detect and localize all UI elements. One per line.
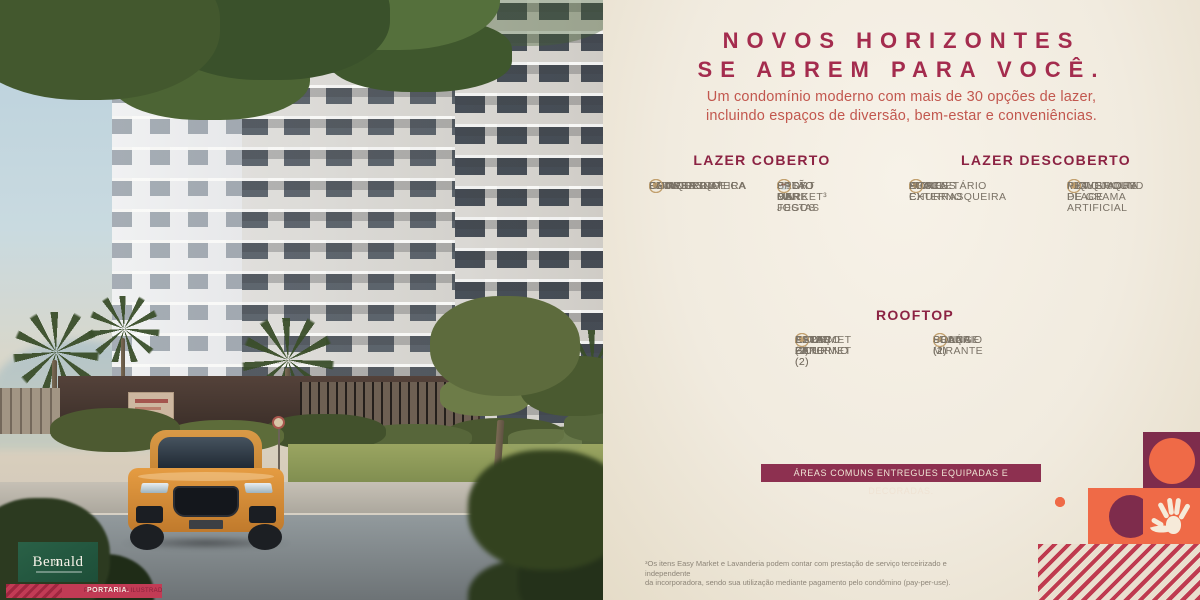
wheel [248, 524, 282, 550]
amenity-label: SOLÁRIO [933, 333, 982, 346]
section-title-lazer-coberto: LAZER COBERTO [631, 152, 893, 168]
orange-suv [128, 430, 284, 548]
subtitle-line1: Um condomínio moderno com mais de 30 opç… [603, 89, 1200, 105]
page-title-line1: NOVOS HORIZONTES [603, 28, 1200, 54]
caption-highlight: PORTARIA. [87, 584, 129, 598]
maroon-circle-ornament [1109, 495, 1143, 538]
building-photo: ⌂ Bernald PERSPECTIVA ILUSTRADA DA PORTA… [0, 0, 603, 600]
section-title-lazer-descoberto: LAZER DESCOBERTO [915, 152, 1177, 168]
amenity-label: ESTAR EXTERNO (2) [795, 333, 849, 368]
amenity-label: LAVANDERIA³ [649, 179, 722, 192]
open-hand-icon [1153, 496, 1193, 540]
right-tree-canopy [430, 296, 580, 396]
orange-circle-ornament [1149, 438, 1195, 484]
orange-square-ornament [1088, 488, 1143, 545]
brand-name: Bernald [33, 554, 84, 571]
amenity-label: SPORT BAR [777, 179, 815, 203]
wheel [130, 524, 164, 550]
section-title-rooftop: ROOFTOP [785, 307, 1045, 323]
brochure-page: ⌂ Bernald PERSPECTIVA ILUSTRADA DA PORTA… [0, 0, 1200, 600]
license-plate [189, 520, 223, 529]
subtitle-line2: incluindo espaços de diversão, bem-estar… [603, 108, 1200, 124]
footnote-line1: ³Os itens Easy Market e Lavanderia podem… [645, 559, 947, 578]
delivered-equipped-banner: ÁREAS COMUNS ENTREGUES EQUIPADAS E DECOR… [761, 464, 1041, 482]
footnote: ³Os itens Easy Market e Lavanderia podem… [645, 559, 985, 588]
windshield [158, 437, 254, 471]
foreground-leaves [468, 450, 603, 570]
front-grille [173, 486, 239, 517]
logo-tagline-rule [36, 571, 82, 573]
street-sign [272, 416, 285, 429]
footnote-line2: da incorporadora, sendo sua utilização m… [645, 578, 951, 587]
photo-caption-band: PERSPECTIVA ILUSTRADA DA PORTARIA. [6, 584, 162, 598]
hand-square-ornament [1143, 488, 1200, 545]
diagonal-stripes-ornament [1038, 544, 1200, 600]
entrance-gate [300, 382, 478, 432]
headlight [140, 483, 169, 493]
amenity-label: PIQUENIQUE [1067, 179, 1137, 192]
maroon-square-ornament [1143, 432, 1200, 488]
dots-ornament [1055, 497, 1065, 541]
bernald-logo: ⌂ Bernald [18, 542, 98, 582]
page-title-line2: SE ABREM PARA VOCÊ. [603, 57, 1200, 83]
amenity-label: LUAU [909, 179, 939, 192]
headlight [244, 483, 273, 493]
